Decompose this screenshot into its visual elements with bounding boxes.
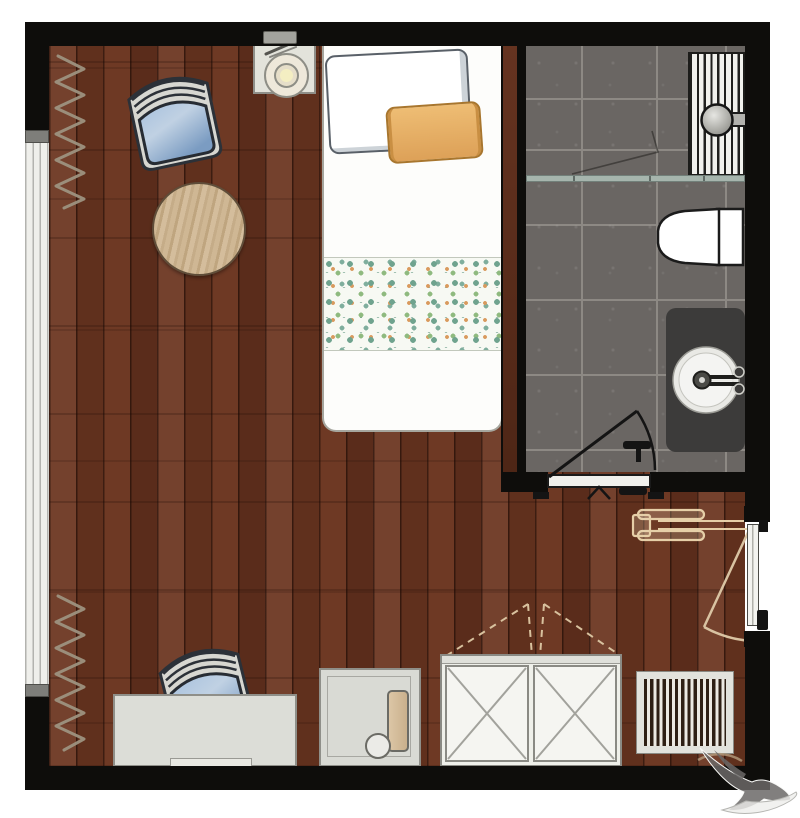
door-pull-stem — [636, 447, 641, 462]
wardrobe-door-right — [533, 665, 617, 762]
desk — [113, 694, 297, 767]
wardrobe-door-left — [445, 665, 529, 762]
pillow-orange — [385, 101, 484, 164]
door-jamb-cap — [533, 492, 549, 499]
wardrobe-door-swing-dashed — [440, 598, 624, 660]
shower-head-icon — [698, 101, 750, 139]
table-lamp-bulb — [280, 69, 293, 82]
floral-blanket — [324, 257, 501, 351]
sink-round — [672, 344, 746, 416]
floor-vent-grille — [637, 672, 733, 753]
window-cap-top — [25, 130, 49, 143]
door-stop-icon — [586, 484, 612, 501]
door-jamb-cap — [648, 492, 664, 499]
shower-glass-partition — [526, 175, 745, 182]
door-pull-handle — [619, 487, 647, 495]
entry-door-handle — [757, 610, 768, 630]
wall-top — [25, 22, 770, 46]
wardrobe — [440, 654, 622, 767]
bird-watermark-icon — [696, 744, 800, 818]
wall-left-lower — [25, 697, 49, 790]
window-left — [25, 130, 49, 697]
bathroom-partition-wall — [501, 46, 526, 472]
shower-slope-lines — [560, 120, 700, 182]
entry-door-hinge — [759, 520, 768, 532]
wall-left-upper — [25, 22, 49, 130]
window-cap-bottom — [25, 684, 49, 697]
wall-bottom — [25, 766, 770, 790]
curtain-zigzag-icon — [48, 52, 92, 212]
cabinet-item-round — [365, 733, 391, 759]
wardrobe-top-rail — [442, 656, 620, 664]
entry-jamb-bottom — [744, 631, 770, 647]
curtain-zigzag-icon — [48, 592, 92, 754]
round-side-table — [152, 182, 246, 276]
toilet — [653, 205, 745, 269]
wall-mounted-control — [263, 31, 297, 44]
floor-plan-canvas — [0, 0, 800, 818]
wall-right-upper — [745, 22, 770, 506]
